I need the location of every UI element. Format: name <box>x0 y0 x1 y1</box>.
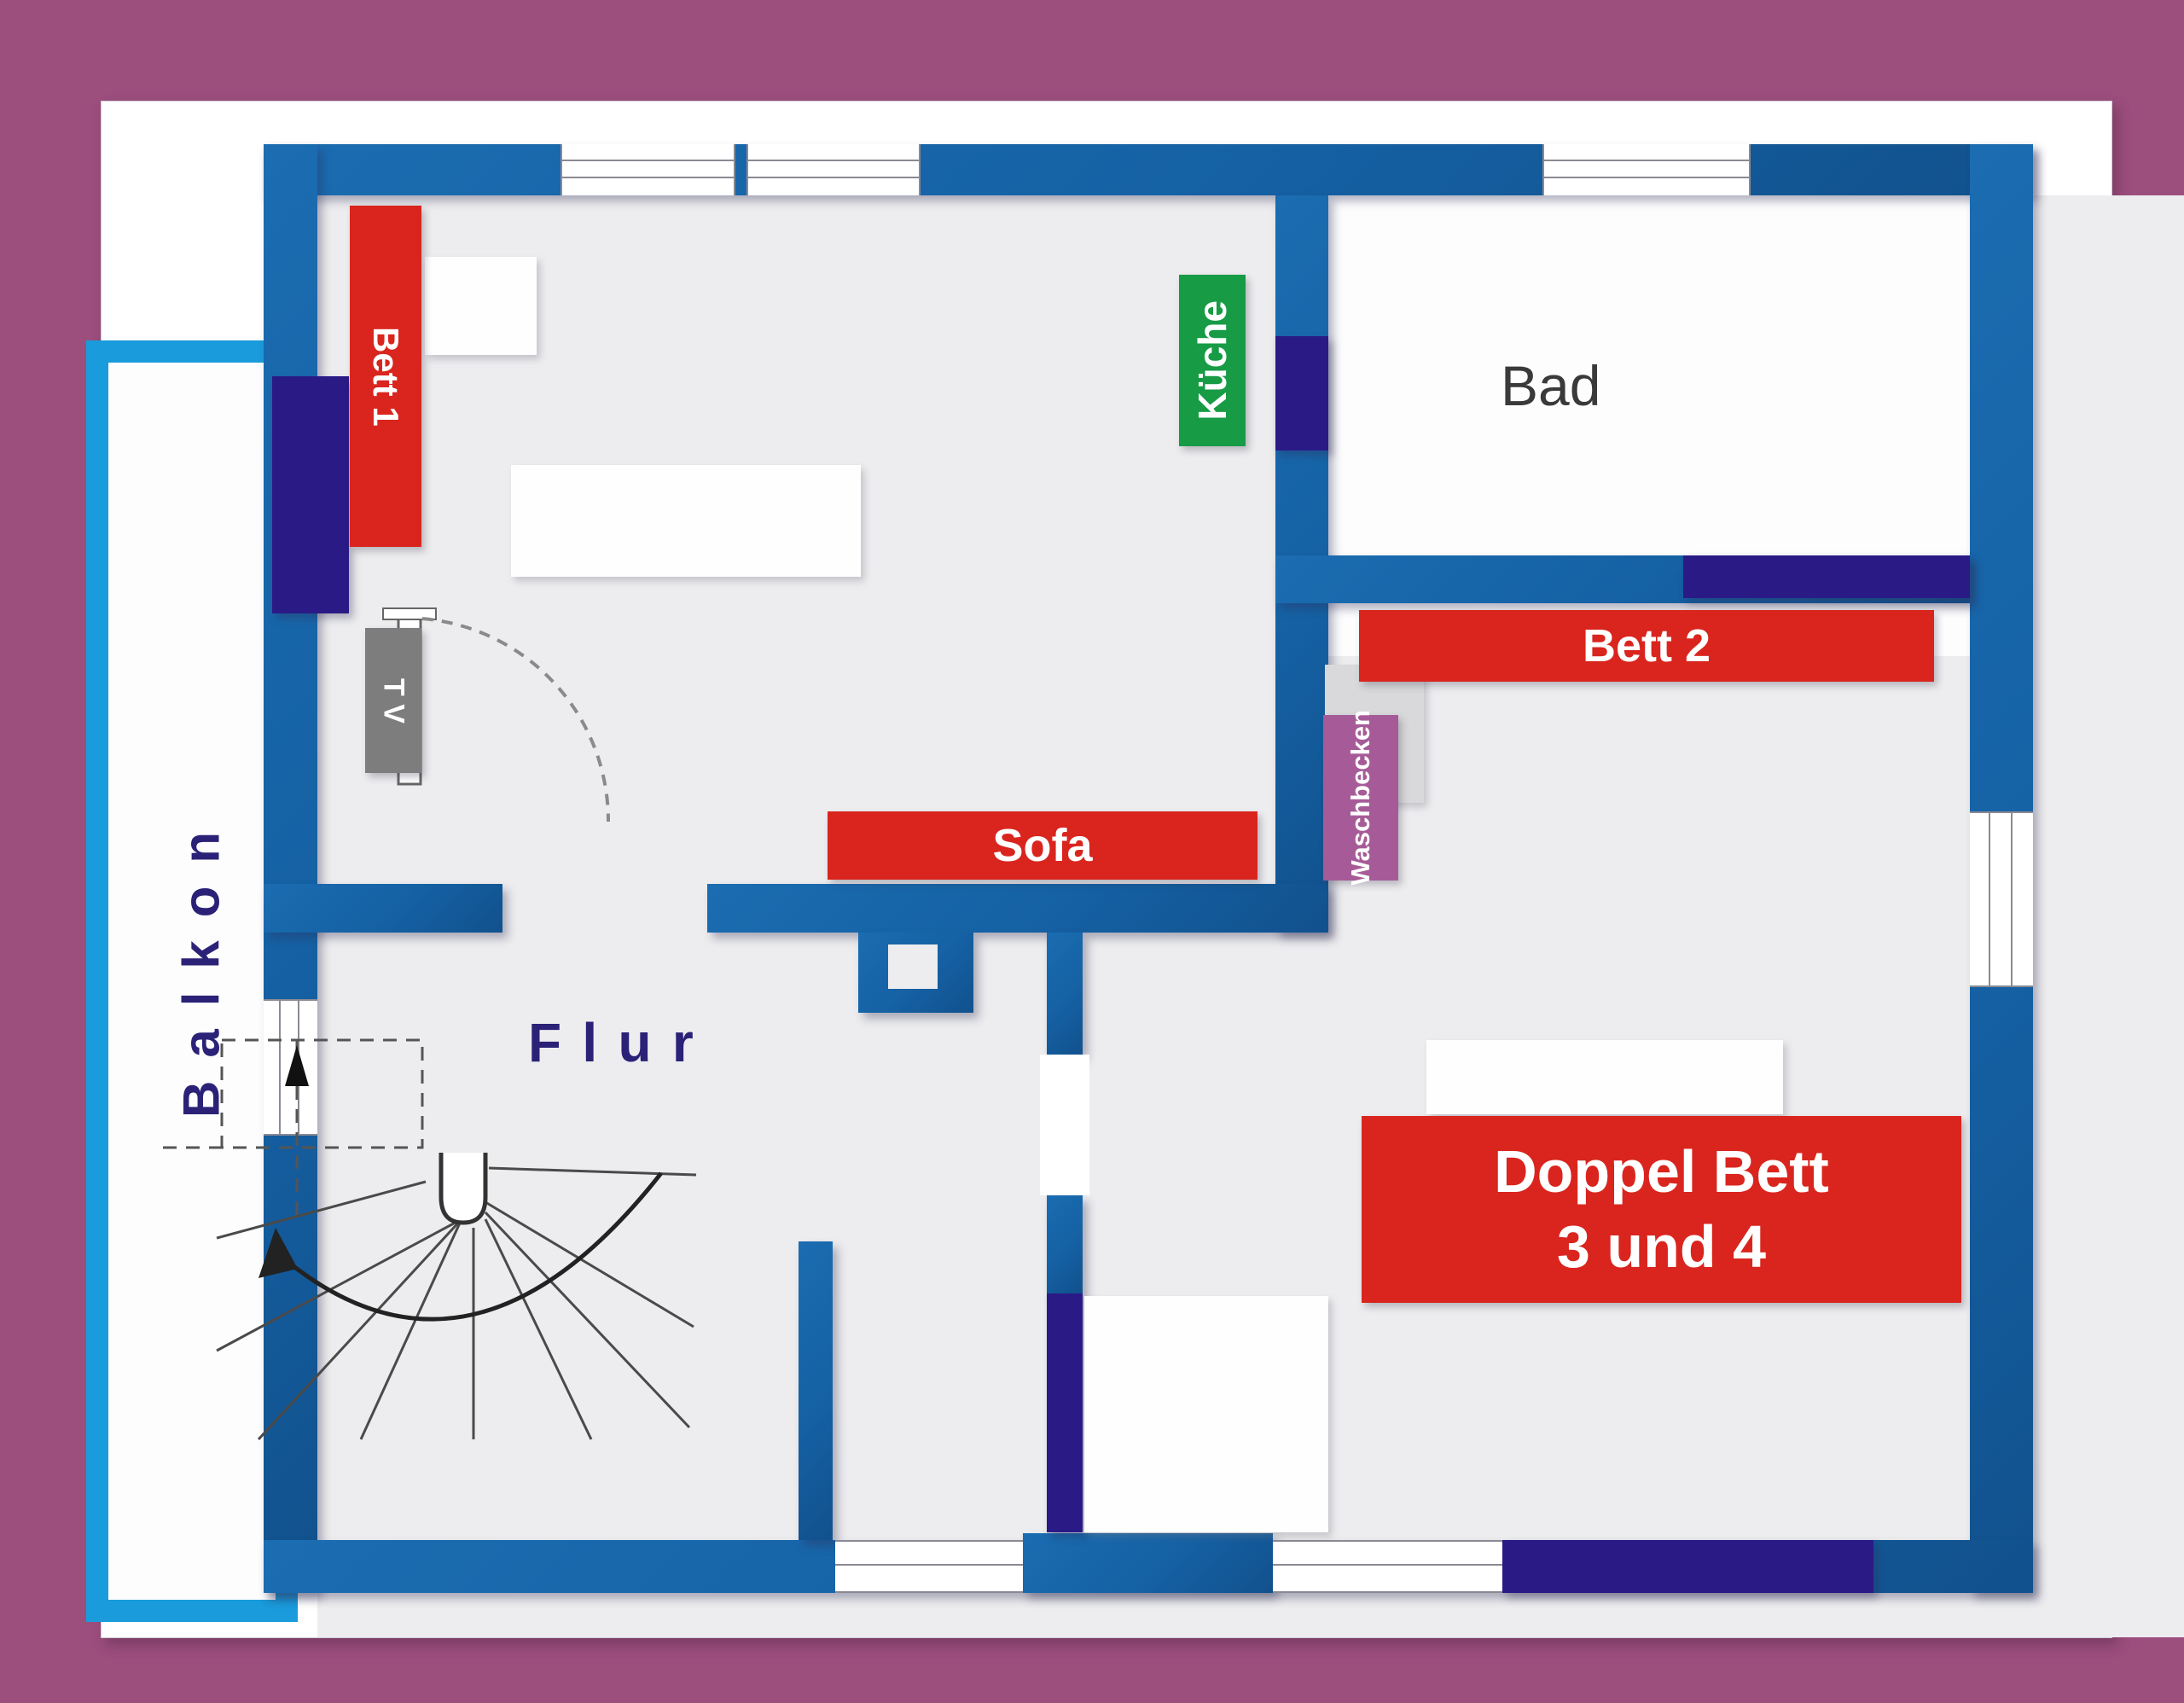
stair-newel <box>441 1153 485 1223</box>
flur-label: Flur <box>528 1011 714 1074</box>
kueche-label: Küche <box>1179 275 1246 446</box>
tv-label-text: T V <box>377 678 410 724</box>
waschbecken-label-text: Waschbecken <box>1345 710 1376 886</box>
doppelbett-label-line1: Doppel Bett <box>1494 1135 1829 1210</box>
doppelbett-label-line2: 3 und 4 <box>1557 1210 1766 1285</box>
bad-label: Bad <box>1501 353 1600 418</box>
stair-landing-arrow <box>285 1045 309 1086</box>
kueche-label-text: Küche <box>1189 300 1235 421</box>
bett1-label-text: Bett 1 <box>365 327 406 427</box>
living-door-swing-arc <box>422 619 608 822</box>
bett2-label-text: Bett 2 <box>1583 619 1711 672</box>
doppelbett-label: Doppel Bett 3 und 4 <box>1362 1116 1961 1303</box>
bett1-label: Bett 1 <box>350 206 421 547</box>
flur-label-text: Flur <box>528 1012 714 1073</box>
bad-label-text: Bad <box>1501 354 1600 417</box>
bett2-label: Bett 2 <box>1359 610 1934 682</box>
stair-arc-arrowhead <box>258 1228 298 1278</box>
plan-page: Balkon <box>101 101 2112 1638</box>
waschbecken-label: Waschbecken <box>1323 715 1398 881</box>
tv-label: T V <box>365 628 421 773</box>
sofa-label: Sofa <box>828 811 1258 880</box>
floor-plan-screenshot: { "canvas": { "width": 2560, "height": 1… <box>0 0 2184 1703</box>
sofa-label-text: Sofa <box>992 819 1092 872</box>
